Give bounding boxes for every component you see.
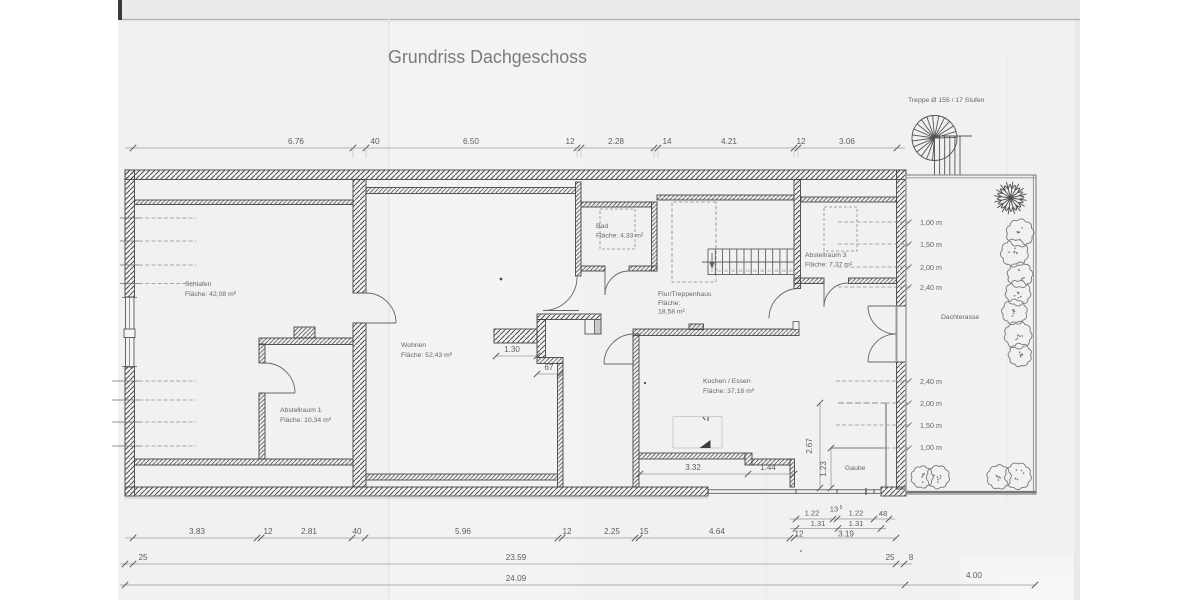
svg-text:2.28: 2.28 [608, 137, 624, 146]
svg-text:1.23: 1.23 [819, 461, 828, 477]
svg-text:Fläche: 10,34 m²: Fläche: 10,34 m² [280, 417, 332, 424]
svg-text:5: 5 [840, 505, 843, 511]
svg-text:Treppe Ø 155 / 17 Stufen: Treppe Ø 155 / 17 Stufen [908, 97, 985, 104]
svg-text:25: 25 [138, 553, 148, 562]
svg-text:9: 9 [711, 269, 713, 273]
svg-text:12: 12 [796, 137, 806, 146]
svg-text:Fläche: 4,33 m²: Fläche: 4,33 m² [596, 233, 644, 240]
svg-text:15: 15 [639, 527, 649, 536]
svg-text:12: 12 [565, 137, 575, 146]
svg-text:Abstellraum 3: Abstellraum 3 [805, 252, 847, 259]
svg-text:14: 14 [662, 137, 672, 146]
svg-text:19: 19 [782, 269, 786, 273]
svg-text:3.32: 3.32 [685, 463, 701, 472]
svg-text:Bad: Bad [596, 223, 608, 230]
svg-text:24.09: 24.09 [506, 574, 527, 583]
svg-text:12: 12 [794, 530, 804, 539]
svg-text:5.96: 5.96 [455, 527, 471, 536]
svg-text:1.44: 1.44 [760, 463, 776, 472]
svg-text:1,50 m: 1,50 m [920, 240, 942, 249]
svg-text:12: 12 [731, 269, 735, 273]
svg-text:40: 40 [370, 137, 380, 146]
svg-text:1.31: 1.31 [811, 519, 826, 528]
svg-text:Abstellraum 1: Abstellraum 1 [280, 407, 322, 414]
svg-text:2,40 m: 2,40 m [920, 377, 942, 386]
svg-text:Fläche: 7,37 m²: Fläche: 7,37 m² [805, 262, 853, 269]
svg-text:14: 14 [746, 269, 750, 273]
svg-text:1.22: 1.22 [849, 509, 864, 518]
svg-text:Fläche:: Fläche: [658, 300, 680, 307]
svg-text:Fläche: 37,18 m²: Fläche: 37,18 m² [703, 388, 755, 395]
svg-text:3.83: 3.83 [189, 527, 205, 536]
svg-text:1,50 m: 1,50 m [920, 421, 942, 430]
svg-text:Schlafen: Schlafen [185, 281, 212, 288]
svg-text:Dachterasse: Dachterasse [941, 314, 979, 321]
svg-text:18: 18 [774, 269, 778, 273]
svg-text:Fläche: 52,43 m²: Fläche: 52,43 m² [401, 352, 453, 359]
svg-text:8: 8 [909, 553, 914, 562]
svg-text:40: 40 [352, 527, 362, 536]
svg-text:Kochen / Essen: Kochen / Essen [703, 378, 751, 385]
svg-text:2,40 m: 2,40 m [920, 283, 942, 292]
svg-text:Flur/Treppenhaus: Flur/Treppenhaus [658, 291, 712, 298]
svg-text:1.30: 1.30 [504, 345, 520, 354]
svg-text:1,00 m: 1,00 m [920, 443, 942, 452]
svg-text:23.59: 23.59 [506, 553, 527, 562]
svg-text:Fläche: 42,08 m²: Fläche: 42,08 m² [185, 291, 237, 298]
svg-text:1.31: 1.31 [849, 519, 864, 528]
svg-text:16: 16 [760, 269, 764, 273]
svg-text:4.21: 4.21 [721, 137, 737, 146]
svg-text:Gaube: Gaube [845, 465, 866, 472]
svg-text:17: 17 [767, 269, 771, 273]
svg-text:12: 12 [562, 527, 572, 536]
svg-text:15: 15 [753, 269, 757, 273]
svg-text:20: 20 [789, 269, 793, 273]
svg-text:4.64: 4.64 [709, 527, 725, 536]
svg-text:2.67: 2.67 [805, 438, 814, 454]
svg-text:6.50: 6.50 [463, 137, 479, 146]
svg-text:1.22: 1.22 [805, 509, 820, 518]
svg-text:67: 67 [545, 363, 554, 372]
svg-text:11: 11 [724, 269, 728, 273]
svg-text:Grundriss Dachgeschoss: Grundriss Dachgeschoss [388, 47, 587, 67]
svg-text:13: 13 [738, 269, 742, 273]
svg-text:18,58 m²: 18,58 m² [658, 309, 686, 316]
svg-text:2,00 m: 2,00 m [920, 263, 942, 272]
svg-text:Wohnen: Wohnen [401, 342, 426, 349]
svg-text:2.25: 2.25 [604, 527, 620, 536]
svg-text:2.81: 2.81 [301, 527, 317, 536]
svg-text:3.06: 3.06 [839, 137, 855, 146]
svg-text:13: 13 [830, 505, 838, 514]
svg-text:1,00 m: 1,00 m [920, 218, 942, 227]
svg-text:3.19: 3.19 [838, 530, 854, 539]
svg-text:10: 10 [717, 269, 721, 273]
svg-text:4.00: 4.00 [966, 571, 982, 580]
svg-text:48: 48 [879, 509, 887, 518]
svg-text:25: 25 [885, 553, 895, 562]
svg-text:12: 12 [263, 527, 273, 536]
svg-text:6.76: 6.76 [288, 137, 304, 146]
svg-text:2,00 m: 2,00 m [920, 399, 942, 408]
